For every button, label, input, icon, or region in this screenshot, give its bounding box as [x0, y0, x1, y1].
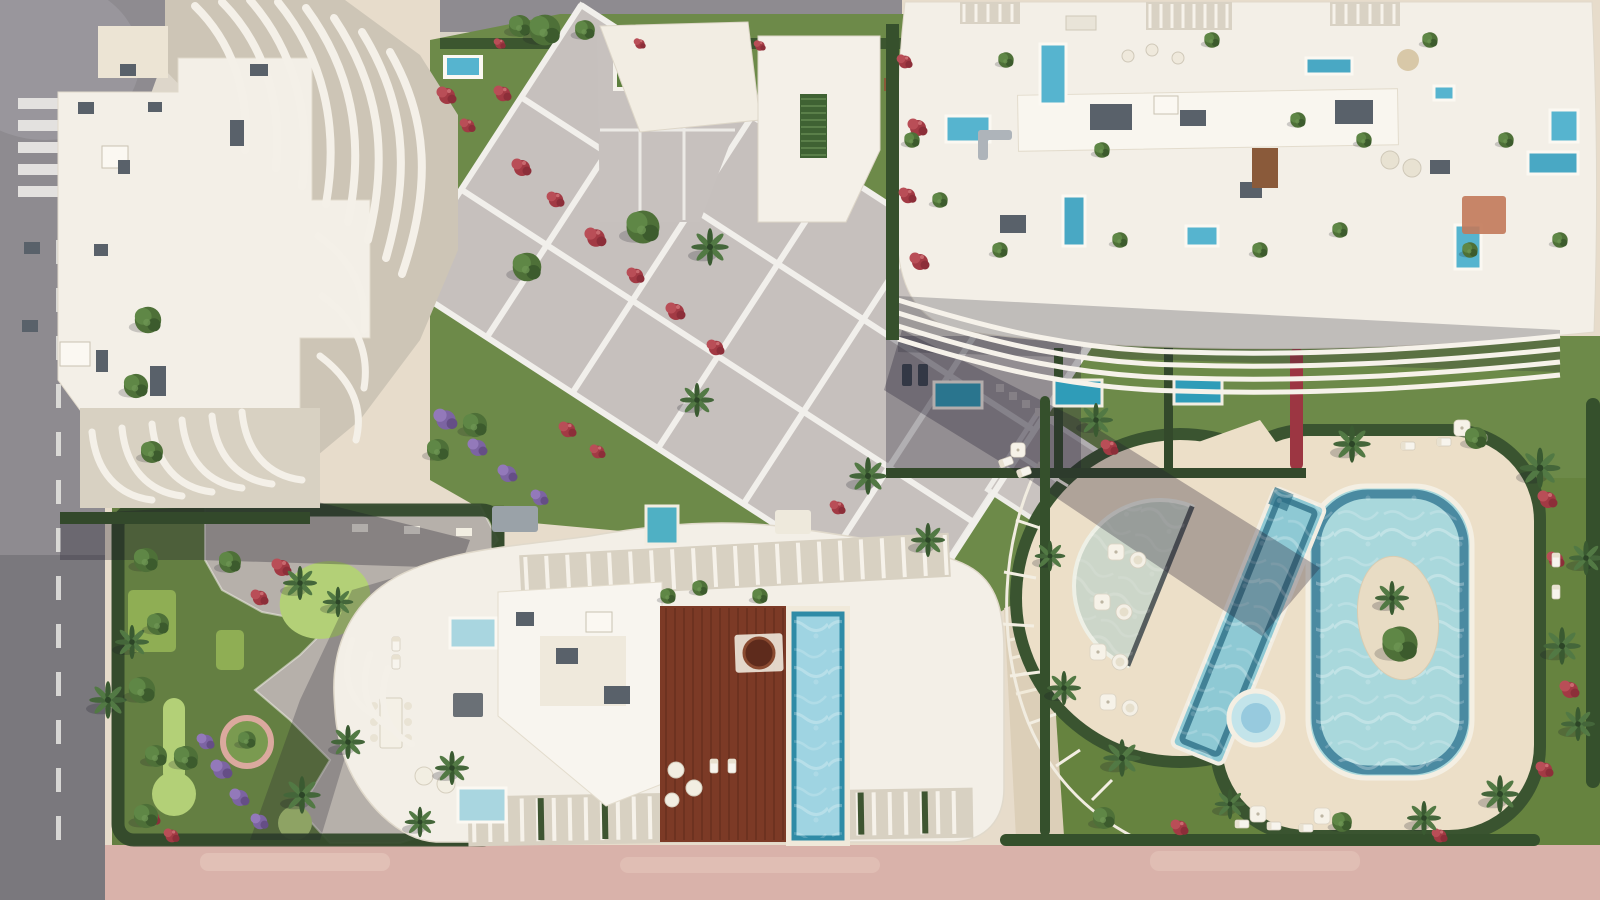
parasol: [1108, 544, 1124, 560]
trellis-post: [1002, 624, 1034, 626]
parasol: [1094, 594, 1110, 610]
rooftop-dining-table: [1066, 16, 1096, 30]
pergola-slat: [840, 540, 842, 580]
pergola-slat: [756, 545, 758, 585]
lane-dash: [56, 624, 61, 648]
roof-box: [516, 612, 534, 626]
pergola-slat: [554, 798, 555, 841]
lawn-patch-small: [216, 630, 244, 670]
lane-dash: [56, 768, 61, 792]
terrace-plunge-pool: [458, 788, 506, 822]
crosswalk-stripe: [18, 120, 64, 131]
lane-dash: [56, 384, 61, 408]
pavement-patch: [620, 857, 880, 873]
pergola-vine: [538, 798, 545, 840]
rooftop-plunge-pool: [1063, 196, 1085, 246]
deck-pouf: [686, 780, 702, 796]
pergola-slat: [874, 792, 875, 835]
daybed: [1116, 604, 1132, 620]
terrace-dark-table: [453, 693, 483, 717]
lounger: [710, 759, 718, 773]
roof-box: [96, 350, 108, 372]
roof-box-white: [1154, 96, 1178, 114]
rooftop-parasol-tan: [1397, 49, 1419, 71]
roof-box: [120, 64, 136, 76]
bottom-hedge-row: [1000, 834, 1540, 846]
roof-box: [150, 366, 166, 396]
daybed: [1130, 552, 1146, 568]
terrace-chair: [404, 718, 412, 726]
lane-dash: [56, 480, 61, 504]
parasol: [1250, 806, 1266, 822]
roof-box-white: [60, 342, 90, 366]
pergola-slat: [735, 546, 737, 586]
lounger: [392, 655, 400, 669]
rooftop-plunge-pool: [1550, 110, 1578, 142]
roof-box: [1430, 160, 1450, 174]
deck-fire-table: [744, 638, 774, 668]
roof-box: [118, 160, 130, 174]
rooftop-chair: [1146, 44, 1158, 56]
pergola-slat: [570, 798, 571, 841]
street-left-shade: [0, 555, 105, 900]
pergola-vine: [922, 791, 929, 833]
pergola-slat: [861, 539, 863, 579]
terrace-chair: [404, 702, 412, 710]
lane-dash: [56, 672, 61, 696]
rooftop-papasan: [1403, 159, 1421, 177]
pergola-slat: [954, 791, 955, 834]
roof-box: [78, 102, 94, 114]
pergola-slat: [714, 547, 716, 587]
rooftop-pool-caustics: [794, 614, 842, 838]
pergola-slat: [798, 543, 800, 583]
roof-box: [604, 686, 630, 704]
pergola-slat: [903, 537, 905, 577]
lounger: [728, 759, 736, 773]
pergola-slat: [634, 797, 635, 840]
roof-box: [1180, 110, 1206, 126]
pergola-slat: [938, 791, 939, 834]
rooftop-plunge-pool: [1186, 226, 1218, 246]
crosswalk-stripe: [18, 164, 64, 175]
pergola-slat: [882, 538, 884, 578]
pergola-slat: [650, 796, 651, 839]
pergola-base: [1330, 2, 1400, 26]
pergola-slat: [672, 549, 674, 589]
putting-green-bulb: [152, 772, 196, 816]
rooftop-sofa: [978, 130, 988, 160]
rooftop-pergola: [960, 2, 1020, 24]
pergola-slat: [618, 797, 619, 840]
lane-dash: [56, 720, 61, 744]
spa-pool-inner: [1241, 703, 1271, 733]
lounger: [1552, 553, 1560, 567]
lounger: [1401, 442, 1415, 450]
lawn-pool-teal: [646, 506, 678, 544]
lounger: [1552, 585, 1560, 599]
lane-dash: [56, 816, 61, 840]
roof-box-white: [586, 612, 612, 632]
pavement-patch: [200, 853, 390, 871]
garden-bench: [456, 528, 472, 536]
roof-box: [1335, 100, 1373, 124]
lounger: [1437, 438, 1451, 446]
site-aerial-render: [0, 0, 1600, 900]
roof-box: [148, 102, 162, 112]
pergola-slat: [777, 544, 779, 584]
roof-box: [94, 244, 108, 256]
hedge-right-edge: [1586, 398, 1600, 788]
crosswalk-stripe: [18, 98, 64, 109]
lane-dash: [56, 432, 61, 456]
rooftop-chair: [1122, 50, 1134, 62]
lounger: [1235, 820, 1249, 828]
rooftop-pergola: [1330, 2, 1400, 26]
roof-box: [24, 242, 40, 254]
building-topleft-hedge: [60, 512, 310, 524]
terrace-chair: [370, 734, 378, 742]
parasol: [1011, 443, 1025, 457]
daybed: [1112, 654, 1128, 670]
parasol: [1314, 808, 1330, 824]
garden-pool-top-water: [447, 58, 479, 75]
rooftop-plunge-pool: [1434, 86, 1454, 100]
lounger: [392, 637, 400, 651]
lawn-table-white: [775, 510, 811, 534]
roof-box: [230, 120, 244, 146]
rooftop-plunge-pool: [1528, 152, 1578, 174]
hedge-diagonal-central: [886, 24, 899, 340]
rooftop-plunge-pool: [1040, 44, 1066, 104]
lane-dash: [56, 576, 61, 600]
parasol: [1100, 694, 1116, 710]
rooftop-dining-table-wood: [1252, 148, 1278, 188]
rooftop-papasan: [1381, 151, 1399, 169]
roof-box: [22, 320, 38, 332]
roof-box: [556, 648, 578, 664]
terrace-papasan: [415, 767, 433, 785]
deck-pouf: [668, 762, 684, 778]
parasol: [1090, 644, 1106, 660]
pavement-patch: [1150, 851, 1360, 871]
pergola-slat: [945, 535, 947, 575]
lawn-table-gray: [492, 506, 538, 532]
daybed: [1122, 700, 1138, 716]
deck-pouf: [665, 793, 679, 807]
pergola-slat: [522, 798, 523, 841]
hedge-pool-west: [1040, 396, 1050, 836]
lounger: [1267, 822, 1281, 830]
pergola-slat: [906, 792, 907, 835]
crosswalk-stripe: [18, 142, 64, 153]
rooftop-chair: [1172, 52, 1184, 64]
pergola-slat: [586, 797, 587, 840]
rooftop-plunge-pool: [1306, 58, 1352, 74]
rooftop-rug: [1462, 196, 1506, 234]
crosswalk-stripe: [18, 186, 64, 197]
pergola-slat: [890, 792, 891, 835]
pergola-slat: [819, 542, 821, 582]
roof-box: [250, 64, 268, 76]
screenshot-root: [0, 0, 1600, 900]
pergola-base: [1146, 2, 1232, 30]
terrace-chair-row: [404, 702, 412, 742]
lounger: [1299, 824, 1313, 832]
roof-box: [1000, 215, 1026, 233]
pergola-vine: [858, 792, 865, 834]
rooftop-pergola: [1146, 2, 1232, 30]
roof-box: [1090, 104, 1132, 130]
putting-green-stem: [163, 698, 185, 784]
terrace-plunge-pool: [450, 618, 496, 648]
